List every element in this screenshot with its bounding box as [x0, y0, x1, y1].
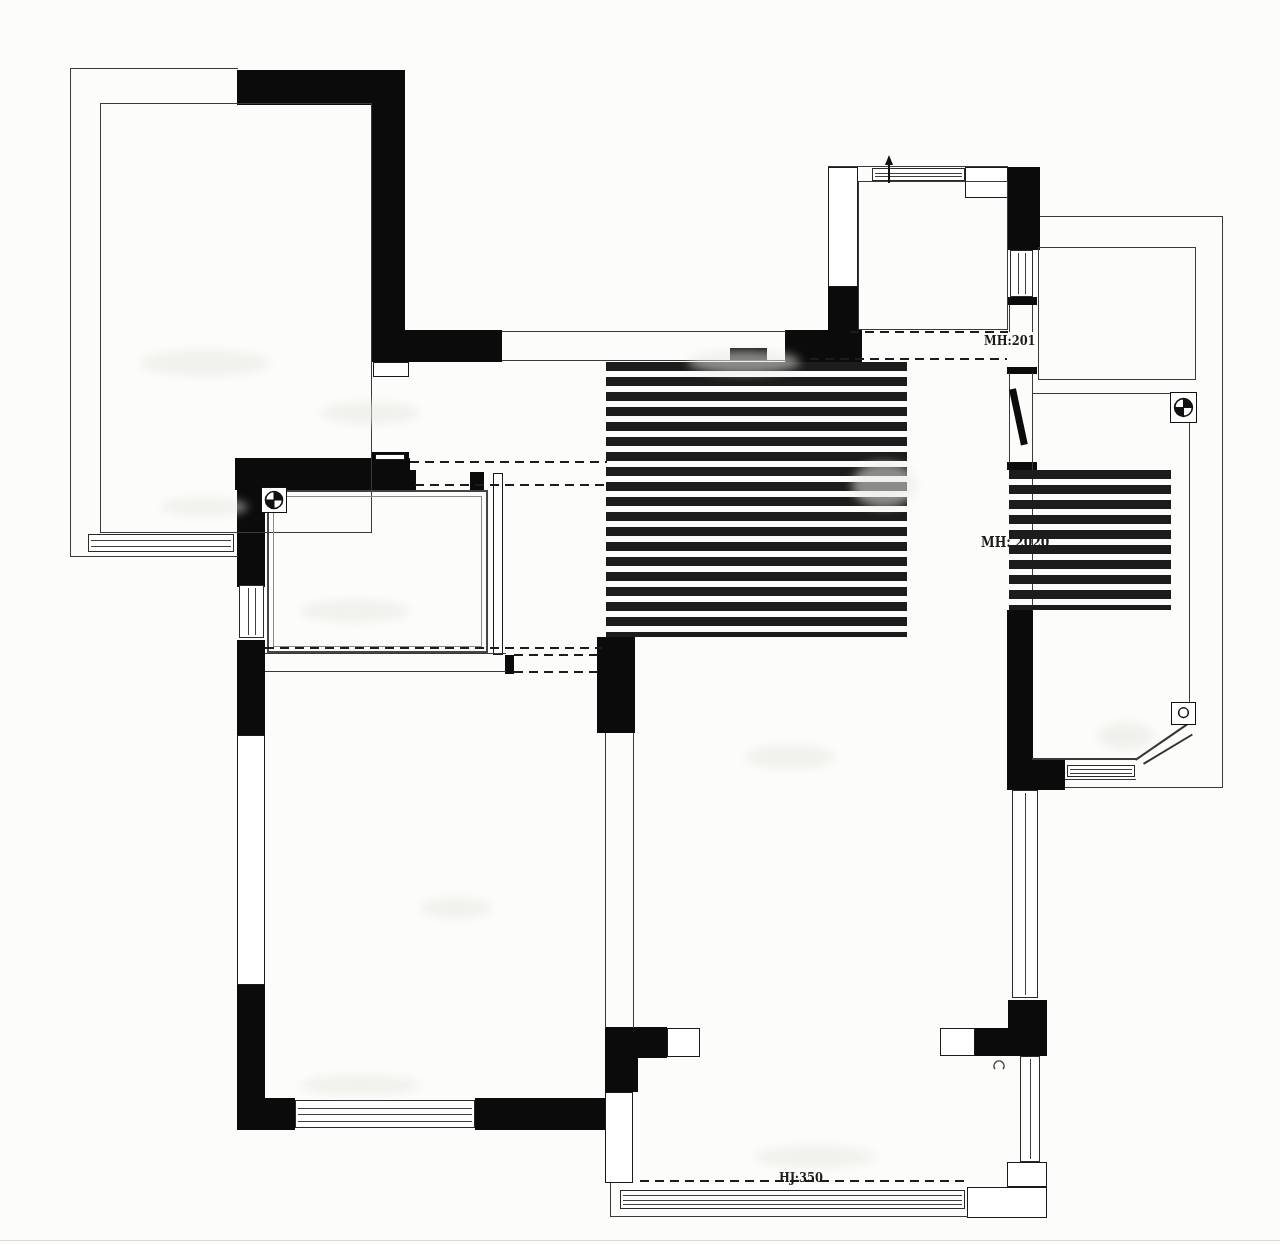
bedroom-south-wall-west	[237, 1098, 295, 1130]
study-west-wall-lower	[237, 640, 265, 735]
east-wing-outer-north	[1040, 216, 1223, 217]
south-room-corner-step-upper	[1007, 1162, 1047, 1187]
faded-label	[140, 350, 270, 376]
terrace-inner	[100, 103, 372, 533]
study-door-jamb-east	[470, 472, 484, 490]
window-glazing-line	[91, 540, 231, 541]
window-glazing-line	[1025, 253, 1026, 294]
faded-label	[745, 745, 835, 769]
south-room-window	[620, 1190, 965, 1209]
bedroom-north-wall-lower	[265, 671, 506, 672]
page-edge	[0, 1240, 1280, 1241]
terrace-outer-west	[70, 68, 71, 557]
south-room-outer-west	[610, 1183, 611, 1217]
kitchen-west-wall-lower	[828, 285, 858, 332]
faded-label	[1098, 722, 1154, 750]
study-door-jamb-west	[407, 470, 416, 490]
bedroom-south-window	[295, 1100, 475, 1128]
study-south-dash	[265, 647, 602, 649]
window-glazing-line	[1018, 253, 1019, 294]
bedroom-door-jamb	[505, 655, 514, 674]
study-dash-n	[410, 461, 607, 463]
study-dash-s	[415, 484, 607, 486]
bath-north-edge	[1032, 393, 1190, 394]
hall-opening-jamb-east	[940, 1028, 975, 1056]
faded-label	[755, 1146, 875, 1168]
faded-label	[420, 898, 492, 918]
mh201-dash-n	[850, 331, 1008, 333]
window-glazing-line	[1025, 793, 1026, 995]
mh2020-dash-e	[1031, 470, 1171, 610]
window-glazing-line	[91, 546, 231, 547]
faded-label	[320, 402, 420, 424]
balcony-door-frame-w	[1009, 373, 1010, 463]
bedroom-east-wall-e	[633, 733, 634, 1028]
hall-southeast-column	[1008, 1000, 1047, 1056]
right-balcony-south-wall	[1007, 758, 1065, 790]
kitchen-inner	[858, 181, 1008, 330]
floor-plan-canvas: MH:201 MH: 2020 HJ:350	[0, 0, 1280, 1245]
center-pillar	[597, 637, 635, 733]
window-glazing-line	[1070, 773, 1132, 774]
window-glazing-line	[623, 1204, 962, 1205]
study-east-panel	[493, 473, 503, 655]
terrace-outer-north	[70, 68, 238, 69]
window-glazing-line	[298, 1114, 472, 1115]
kitchen-outer-north	[828, 166, 1008, 167]
bath-window-sill	[1065, 779, 1136, 780]
east-wing-outer-east	[1222, 216, 1223, 788]
hall-south-wall-west	[605, 1027, 667, 1058]
faded-label	[160, 498, 248, 516]
hj350-dash	[640, 1180, 965, 1182]
east-wing-outer-south	[1065, 787, 1223, 788]
bedroom-opening-dash-n	[514, 654, 598, 656]
faded-label	[688, 350, 800, 374]
bath-east-edge	[1189, 393, 1190, 723]
study-west-window	[239, 585, 264, 638]
bedroom-south-wall-east	[475, 1098, 608, 1130]
terrace-south-window	[88, 534, 234, 552]
terrace-right-wall	[372, 70, 405, 332]
bath-drain-symbol-icon	[1171, 702, 1196, 725]
bedroom-north-wall-upper	[265, 653, 506, 654]
faded-label	[300, 600, 410, 622]
hall-east-wall	[1007, 610, 1033, 758]
window-glazing-line	[298, 1108, 472, 1109]
entry-opening-north	[502, 331, 786, 332]
faded-label	[300, 1075, 420, 1095]
south-room-east-window	[1020, 1056, 1040, 1162]
terrace-outer-south	[70, 556, 238, 557]
study-inner-inner	[273, 496, 482, 647]
window-glazing-line	[623, 1200, 962, 1201]
balcony-door-leaf	[1009, 388, 1028, 445]
kitchen-jamb-line-w	[1009, 305, 1010, 332]
south-room-west-wall-upper	[605, 1058, 638, 1092]
hall-south-wall-east	[975, 1028, 1008, 1056]
entry-threshold	[373, 362, 409, 377]
hall-knob-mark-icon	[992, 1058, 1006, 1072]
label-rail-height-hj350: HJ:350	[779, 1170, 823, 1185]
south-room-outer-south	[610, 1216, 968, 1217]
hall-opening-jamb-west	[667, 1028, 700, 1057]
label-door-opening-mh201: MH:201	[984, 333, 1036, 348]
bedroom-east-wall-w	[605, 733, 606, 1028]
entry-wall-west	[372, 330, 502, 362]
window-glazing-line	[1030, 1059, 1031, 1159]
faded-label	[852, 462, 916, 508]
study-track-slot	[375, 454, 405, 460]
bedroom-west-window-bay	[237, 735, 265, 985]
bath-south-edge	[1032, 758, 1136, 760]
window-glazing-line	[1070, 769, 1132, 770]
kitchen-balcony	[1038, 247, 1196, 380]
window-glazing-line	[248, 588, 249, 635]
kitchen-east-wall-upper	[1008, 167, 1040, 250]
kitchen-east-window	[1010, 250, 1033, 297]
kitchen-east-jamb	[1007, 297, 1037, 305]
kitchen-window-arrow-icon	[883, 155, 895, 183]
window-glazing-line	[298, 1121, 472, 1122]
bedroom-opening-dash-s	[514, 671, 598, 673]
bath-south-window	[1067, 765, 1135, 777]
window-glazing-line	[623, 1195, 962, 1196]
kitchen-west-wall-upper	[828, 167, 858, 287]
south-room-west-column	[605, 1092, 633, 1183]
mh201-dash-s	[810, 358, 1007, 360]
study-datum-symbol-icon	[261, 487, 287, 513]
window-glazing-line	[255, 588, 256, 635]
south-room-corner-step-lower	[967, 1187, 1047, 1218]
kitchen-jamb-line-e	[1032, 305, 1033, 332]
bath-datum-symbol-icon	[1170, 392, 1197, 423]
hall-east-window	[1012, 790, 1038, 998]
